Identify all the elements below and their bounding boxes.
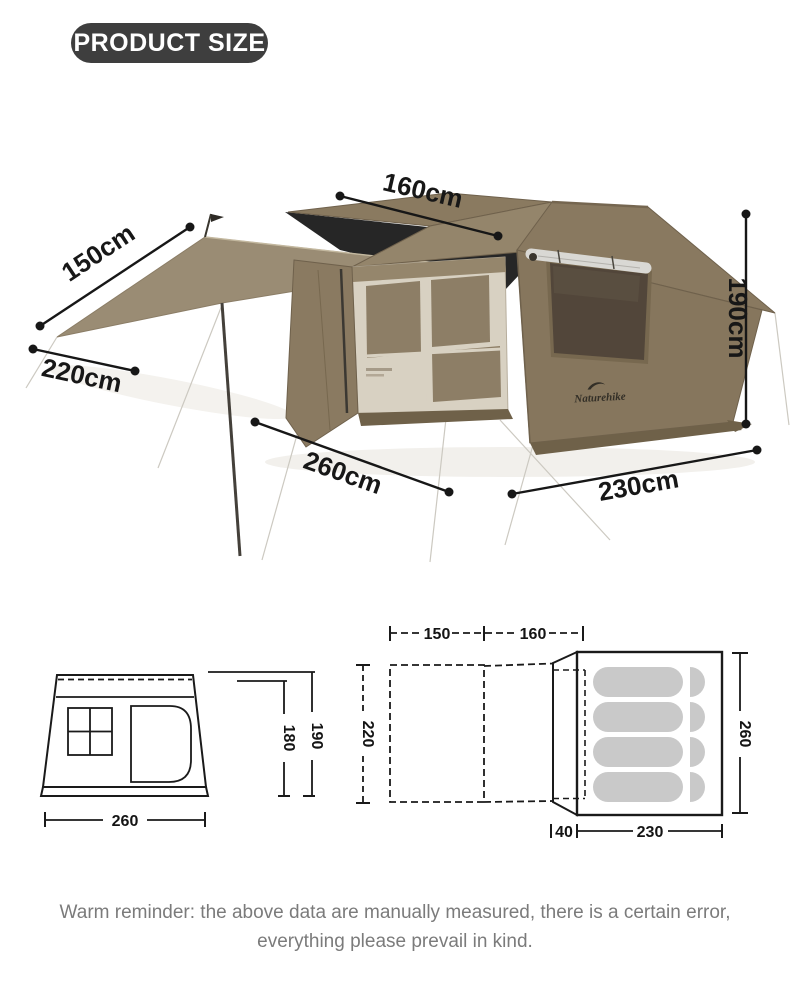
dim-tarp-length-label: 150cm <box>56 218 140 288</box>
floor-bottom-dims: 40 230 <box>551 824 722 841</box>
outer-height-label: 190 <box>308 723 325 750</box>
dim-tarp-width-label: 220cm <box>39 352 124 398</box>
roof-length-label: 160 <box>520 626 547 643</box>
tarp-tip-pole <box>205 214 211 237</box>
dim-height-label: 190cm <box>723 278 753 359</box>
badge-label: PRODUCT SIZE <box>73 29 265 58</box>
size-diagrams: 260 180 190 150 160 220 <box>0 600 790 880</box>
warm-reminder-line1: Warm reminder: the above data are manual… <box>0 898 790 927</box>
vestibule-depth-label: 40 <box>555 824 573 841</box>
inner-height-label: 180 <box>280 725 297 752</box>
sleeping-pad <box>593 702 705 732</box>
top-view-diagram: 150 160 220 <box>356 626 585 803</box>
front-door <box>131 706 191 782</box>
mesh-window <box>366 281 421 358</box>
sleeping-pads <box>593 667 705 802</box>
awning-length-label: 150 <box>424 626 451 643</box>
front-window <box>68 708 112 755</box>
mesh-window <box>431 275 490 347</box>
front-width-label: 260 <box>112 813 139 830</box>
floor-length-label: 260 <box>736 721 753 748</box>
tent-photo: Naturehike 150cm 220cm <box>0 140 790 580</box>
floor-width-label: 230 <box>637 824 664 841</box>
height-dims: 180 190 <box>208 672 325 796</box>
tent-front-wall <box>352 257 508 415</box>
warm-reminder: Warm reminder: the above data are manual… <box>0 898 790 956</box>
tent-left-flap <box>286 260 358 447</box>
front-width-dim: 260 <box>45 812 205 830</box>
sleeping-pad <box>593 772 705 802</box>
awning-width-label: 220 <box>359 721 376 748</box>
sleeping-pad <box>593 667 705 697</box>
tarp-flag <box>211 214 224 222</box>
tarp-pole <box>222 303 240 556</box>
sleeping-pad <box>593 737 705 767</box>
warm-reminder-line2: everything please prevail in kind. <box>0 927 790 956</box>
floor-plan-diagram: 260 40 230 <box>551 652 753 841</box>
front-view-diagram: 260 180 190 <box>41 672 325 830</box>
product-size-badge: PRODUCT SIZE <box>71 23 268 63</box>
floor-length-dim: 260 <box>732 653 753 813</box>
mesh-window <box>432 346 501 402</box>
